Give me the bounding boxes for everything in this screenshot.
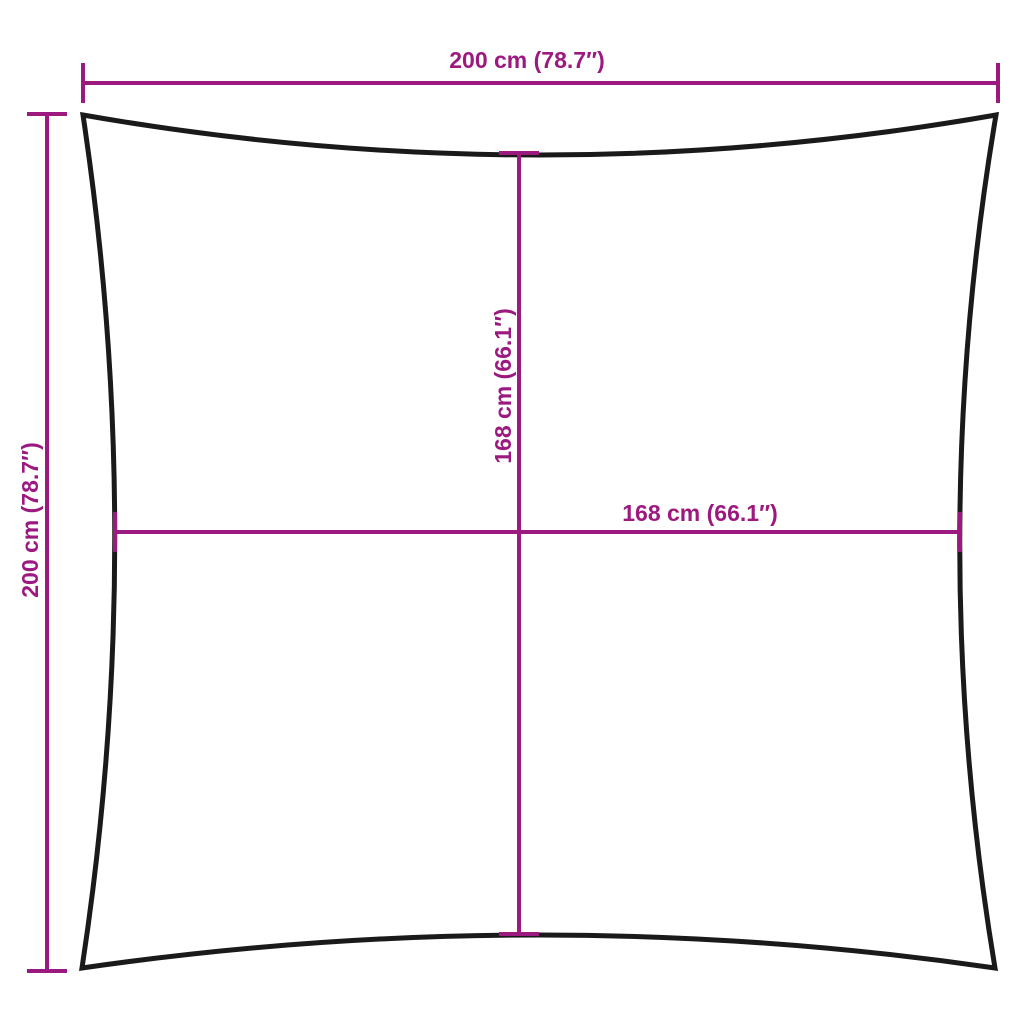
dimension-diagram: 200 cm (78.7″) 200 cm (78.7″) 168 cm (66… bbox=[0, 0, 1024, 1024]
top-width-label: 200 cm (78.7″) bbox=[449, 47, 605, 73]
inner-width-label: 168 cm (66.1″) bbox=[622, 500, 778, 526]
diagram-canvas: 200 cm (78.7″) 200 cm (78.7″) 168 cm (66… bbox=[0, 0, 1024, 1024]
inner-height-label: 168 cm (66.1″) bbox=[490, 308, 516, 464]
left-height-label: 200 cm (78.7″) bbox=[17, 442, 43, 598]
